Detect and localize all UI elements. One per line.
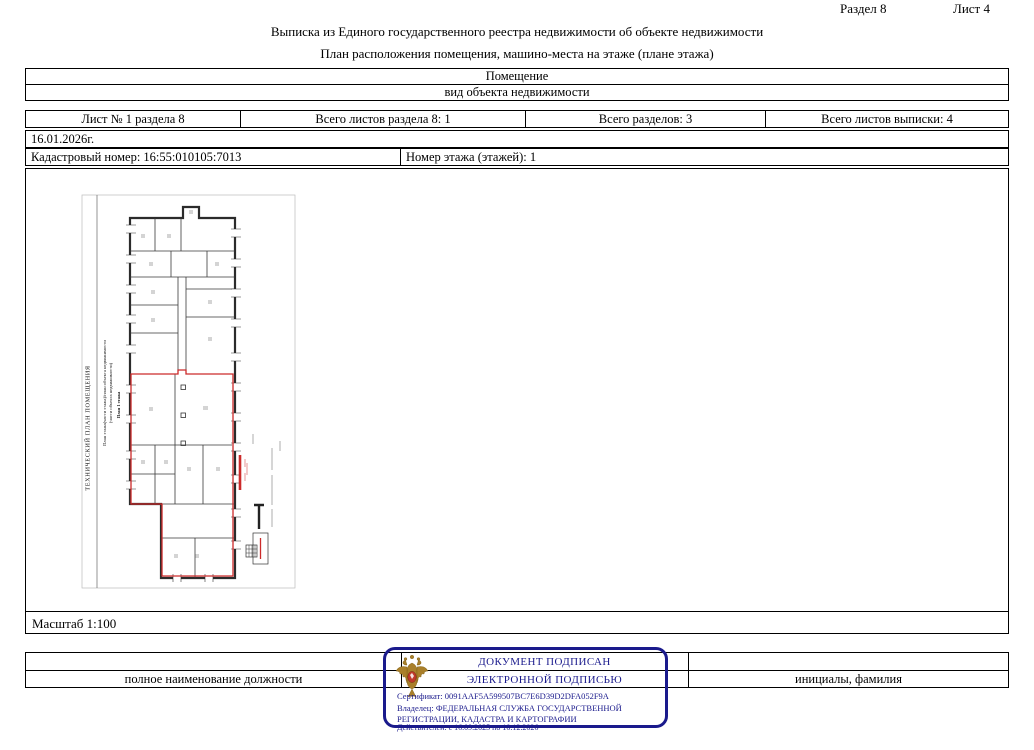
doc-subtitle: План расположения помещения, машино-мест… — [0, 46, 1034, 62]
stamp-validity: Действителен: с 16.09.2025 по 10.12.2026 — [397, 723, 538, 732]
section-label: Раздел 8 — [840, 1, 887, 17]
plan-side-caption-2a: План этажа(части этажа)/план объекта нед… — [102, 340, 107, 446]
stamp-owner-2: РЕГИСТРАЦИИ, КАДАСТРА И КАРТОГРАФИИ — [397, 714, 577, 724]
egrn-extract-page: Раздел 8 Лист 4 Выписка из Единого госуд… — [0, 0, 1034, 750]
stamp-owner-1: Владелец: ФЕДЕРАЛЬНАЯ СЛУЖБА ГОСУДАРСТВЕ… — [397, 703, 622, 713]
stamp-line-1: ДОКУМЕНТ ПОДПИСАН — [430, 656, 659, 668]
name-label: инициалы, фамилия — [689, 671, 1008, 688]
sheet-info-cell: Всего листов выписки: 4 — [766, 111, 1008, 127]
scale-label: Масштаб 1:100 — [32, 616, 116, 632]
digital-signature-stamp: ДОКУМЕНТ ПОДПИСАН ЭЛЕКТРОННОЙ ПОДПИСЬЮ С… — [383, 647, 668, 728]
position-label: полное наименование должности — [26, 671, 401, 688]
plan-side-caption-3: План 1 этажа — [116, 391, 121, 418]
floor-number-cell: Номер этажа (этажей): 1 — [401, 149, 1008, 165]
plan-box-divider — [26, 611, 1008, 612]
sheet-info-cell: Всего листов раздела 8: 1 — [241, 111, 526, 127]
doc-title: Выписка из Единого государственного реес… — [0, 24, 1034, 40]
object-type-cell: Помещение — [26, 69, 1008, 85]
sheet-label: Лист 4 — [953, 1, 990, 17]
cadastral-number-cell: Кадастровый номер: 16:55:010105:7013 — [26, 149, 401, 165]
sheet-info-table: Лист № 1 раздела 8 Всего листов раздела … — [25, 110, 1009, 128]
stamp-certificate: Сертификат: 0091AAF5A599507BC7E6D39D2DFA… — [397, 691, 609, 701]
floor-plan-drawing: ТЕХНИЧЕСКИЙ ПЛАН ПОМЕЩЕНИЯ План этажа(ча… — [75, 193, 300, 593]
plan-side-caption-2b: (части объекта недвижимости) — [108, 362, 113, 423]
stamp-line-2: ЭЛЕКТРОННОЙ ПОДПИСЬЮ — [430, 674, 659, 686]
page-corner-labels: Раздел 8 Лист 4 — [840, 1, 990, 17]
plan-side-caption-1: ТЕХНИЧЕСКИЙ ПЛАН ПОМЕЩЕНИЯ — [84, 365, 92, 491]
cadastral-row: Кадастровый номер: 16:55:010105:7013 Ном… — [25, 148, 1009, 166]
object-type-caption: вид объекта недвижимости — [26, 85, 1008, 100]
sheet-info-cell: Лист № 1 раздела 8 — [26, 111, 241, 127]
extract-date-row: 16.01.2026г. — [25, 130, 1009, 148]
object-type-table: Помещение вид объекта недвижимости — [25, 68, 1009, 101]
sheet-info-cell: Всего разделов: 3 — [526, 111, 766, 127]
